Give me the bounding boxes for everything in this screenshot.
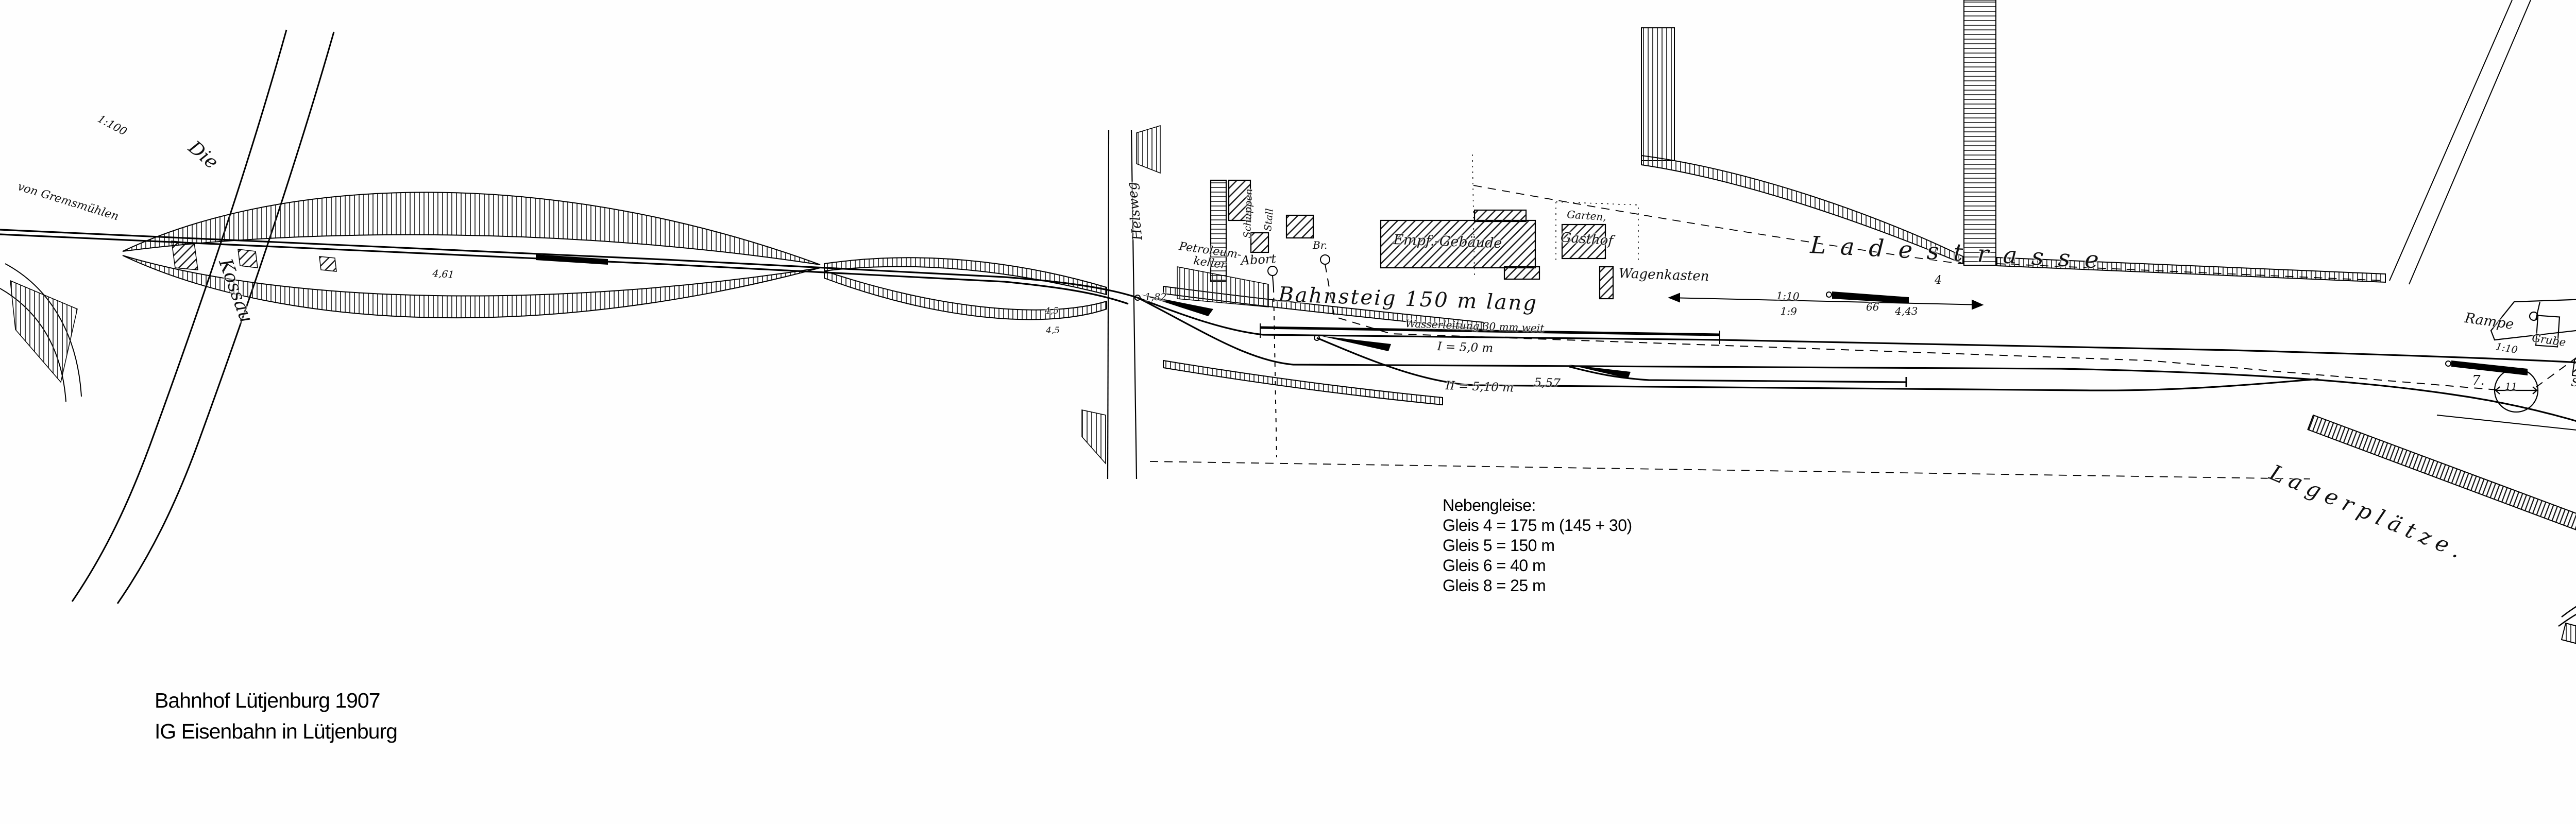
signals-wells	[1268, 255, 1330, 457]
diagonal-road-crossing	[2389, 0, 2531, 284]
grube-outline	[2536, 316, 2560, 347]
boundary-dashes	[1150, 185, 2385, 479]
signal-disc	[1268, 266, 1277, 276]
siding-legend-line: Gleis 4 = 175 m (145 + 30)	[1443, 516, 1632, 536]
empfangsgebaeude-ext	[1504, 267, 1539, 279]
siding-legend: Nebengleise: Gleis 4 = 175 m (145 + 30) …	[1443, 495, 1632, 596]
empfangsgebaeude-bump	[1475, 210, 1526, 221]
bahnhof-luetjenburg-track-plan: von GremsmühlenDieKossau1:100HelswegPetr…	[0, 0, 2576, 824]
loading-area	[2491, 299, 2576, 412]
buffer-stops	[1906, 377, 2576, 742]
road-helsweg-lines	[1108, 130, 1137, 479]
helsweg-slope-b	[1137, 126, 1160, 173]
siding-legend-line: Gleis 5 = 150 m	[1443, 536, 1632, 556]
left-road-slope	[10, 281, 77, 382]
track-2	[1138, 298, 2576, 737]
plan-title: Bahnhof Lütjenburg 1907	[155, 685, 397, 716]
well-circle-1	[1320, 255, 1330, 264]
station-buildings	[1211, 180, 1613, 299]
gasthof-building	[1562, 225, 1605, 259]
empfangsgebaeude	[1381, 220, 1535, 268]
siding-legend-line: Gleis 6 = 40 m	[1443, 556, 1632, 576]
embankment-lenses	[123, 192, 1484, 405]
plan-subtitle: IG Eisenbahn in Lütjenburg	[155, 716, 397, 747]
track-1	[1138, 298, 2576, 715]
shed-b	[1251, 233, 1268, 252]
shed-a	[1229, 180, 1250, 220]
siding-legend-heading: Nebengleise:	[1443, 495, 1632, 516]
shed-c	[1286, 215, 1313, 238]
wagenkasten-box	[1600, 267, 1613, 299]
yard-rung-band	[2308, 415, 2576, 612]
ladder-road	[1964, 0, 1996, 265]
water-pipe	[1325, 163, 2576, 432]
platform	[1260, 323, 1720, 344]
title-block: Bahnhof Lütjenburg 1907 IG Eisenbahn in …	[155, 685, 397, 747]
river-kossau-lines	[72, 30, 334, 604]
cutting-bands	[1641, 28, 2576, 367]
siding-legend-line: Gleis 8 = 25 m	[1443, 576, 1632, 596]
ladder-structure	[1211, 180, 1226, 281]
helsweg-slope-a	[1082, 410, 1106, 463]
measure-arrows	[1669, 294, 2576, 439]
rampe-outline	[2491, 299, 2576, 340]
lower-stream	[2558, 586, 2576, 822]
track-3	[1317, 338, 2318, 390]
